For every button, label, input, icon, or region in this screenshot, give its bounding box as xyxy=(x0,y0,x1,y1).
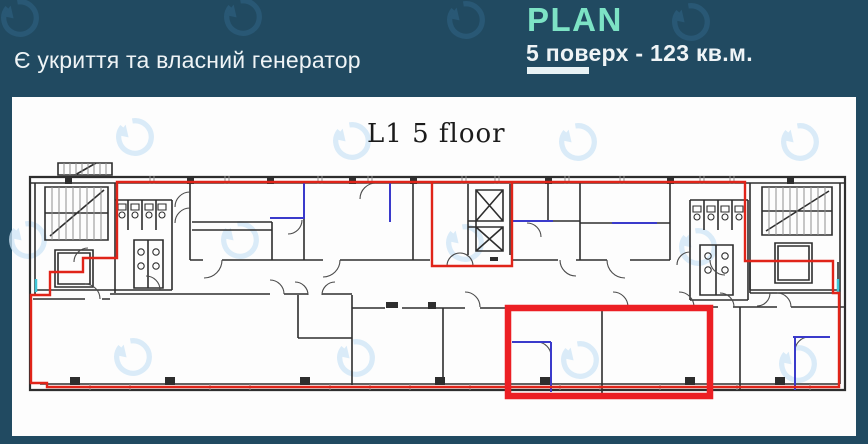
plan-title: L1 5 floor xyxy=(367,119,506,149)
highlighted-unit-outline xyxy=(508,308,710,396)
watermark-logo-icon xyxy=(220,0,266,40)
window-ticks xyxy=(90,176,810,390)
shelter-generator-note: Є укриття та власний генератор xyxy=(14,47,361,74)
watermark-logo-icon xyxy=(0,0,43,41)
left-restroom xyxy=(115,200,172,290)
right-stairwell xyxy=(750,183,840,293)
watermark-logo-icon xyxy=(668,0,714,45)
door-arcs xyxy=(74,183,809,356)
subtitle-underline xyxy=(527,67,589,74)
floor-area-subtitle: 5 поверх - 123 кв.м. xyxy=(526,40,753,67)
column-bumps xyxy=(65,176,794,385)
central-elevator-core xyxy=(432,183,512,266)
plan-heading: PLAN xyxy=(527,1,623,39)
watermark-logo-icon xyxy=(443,0,489,43)
right-restroom xyxy=(690,200,748,300)
building-exterior-walls xyxy=(30,177,845,390)
slide: Є укриття та власний генератор PLAN 5 по… xyxy=(0,0,868,444)
